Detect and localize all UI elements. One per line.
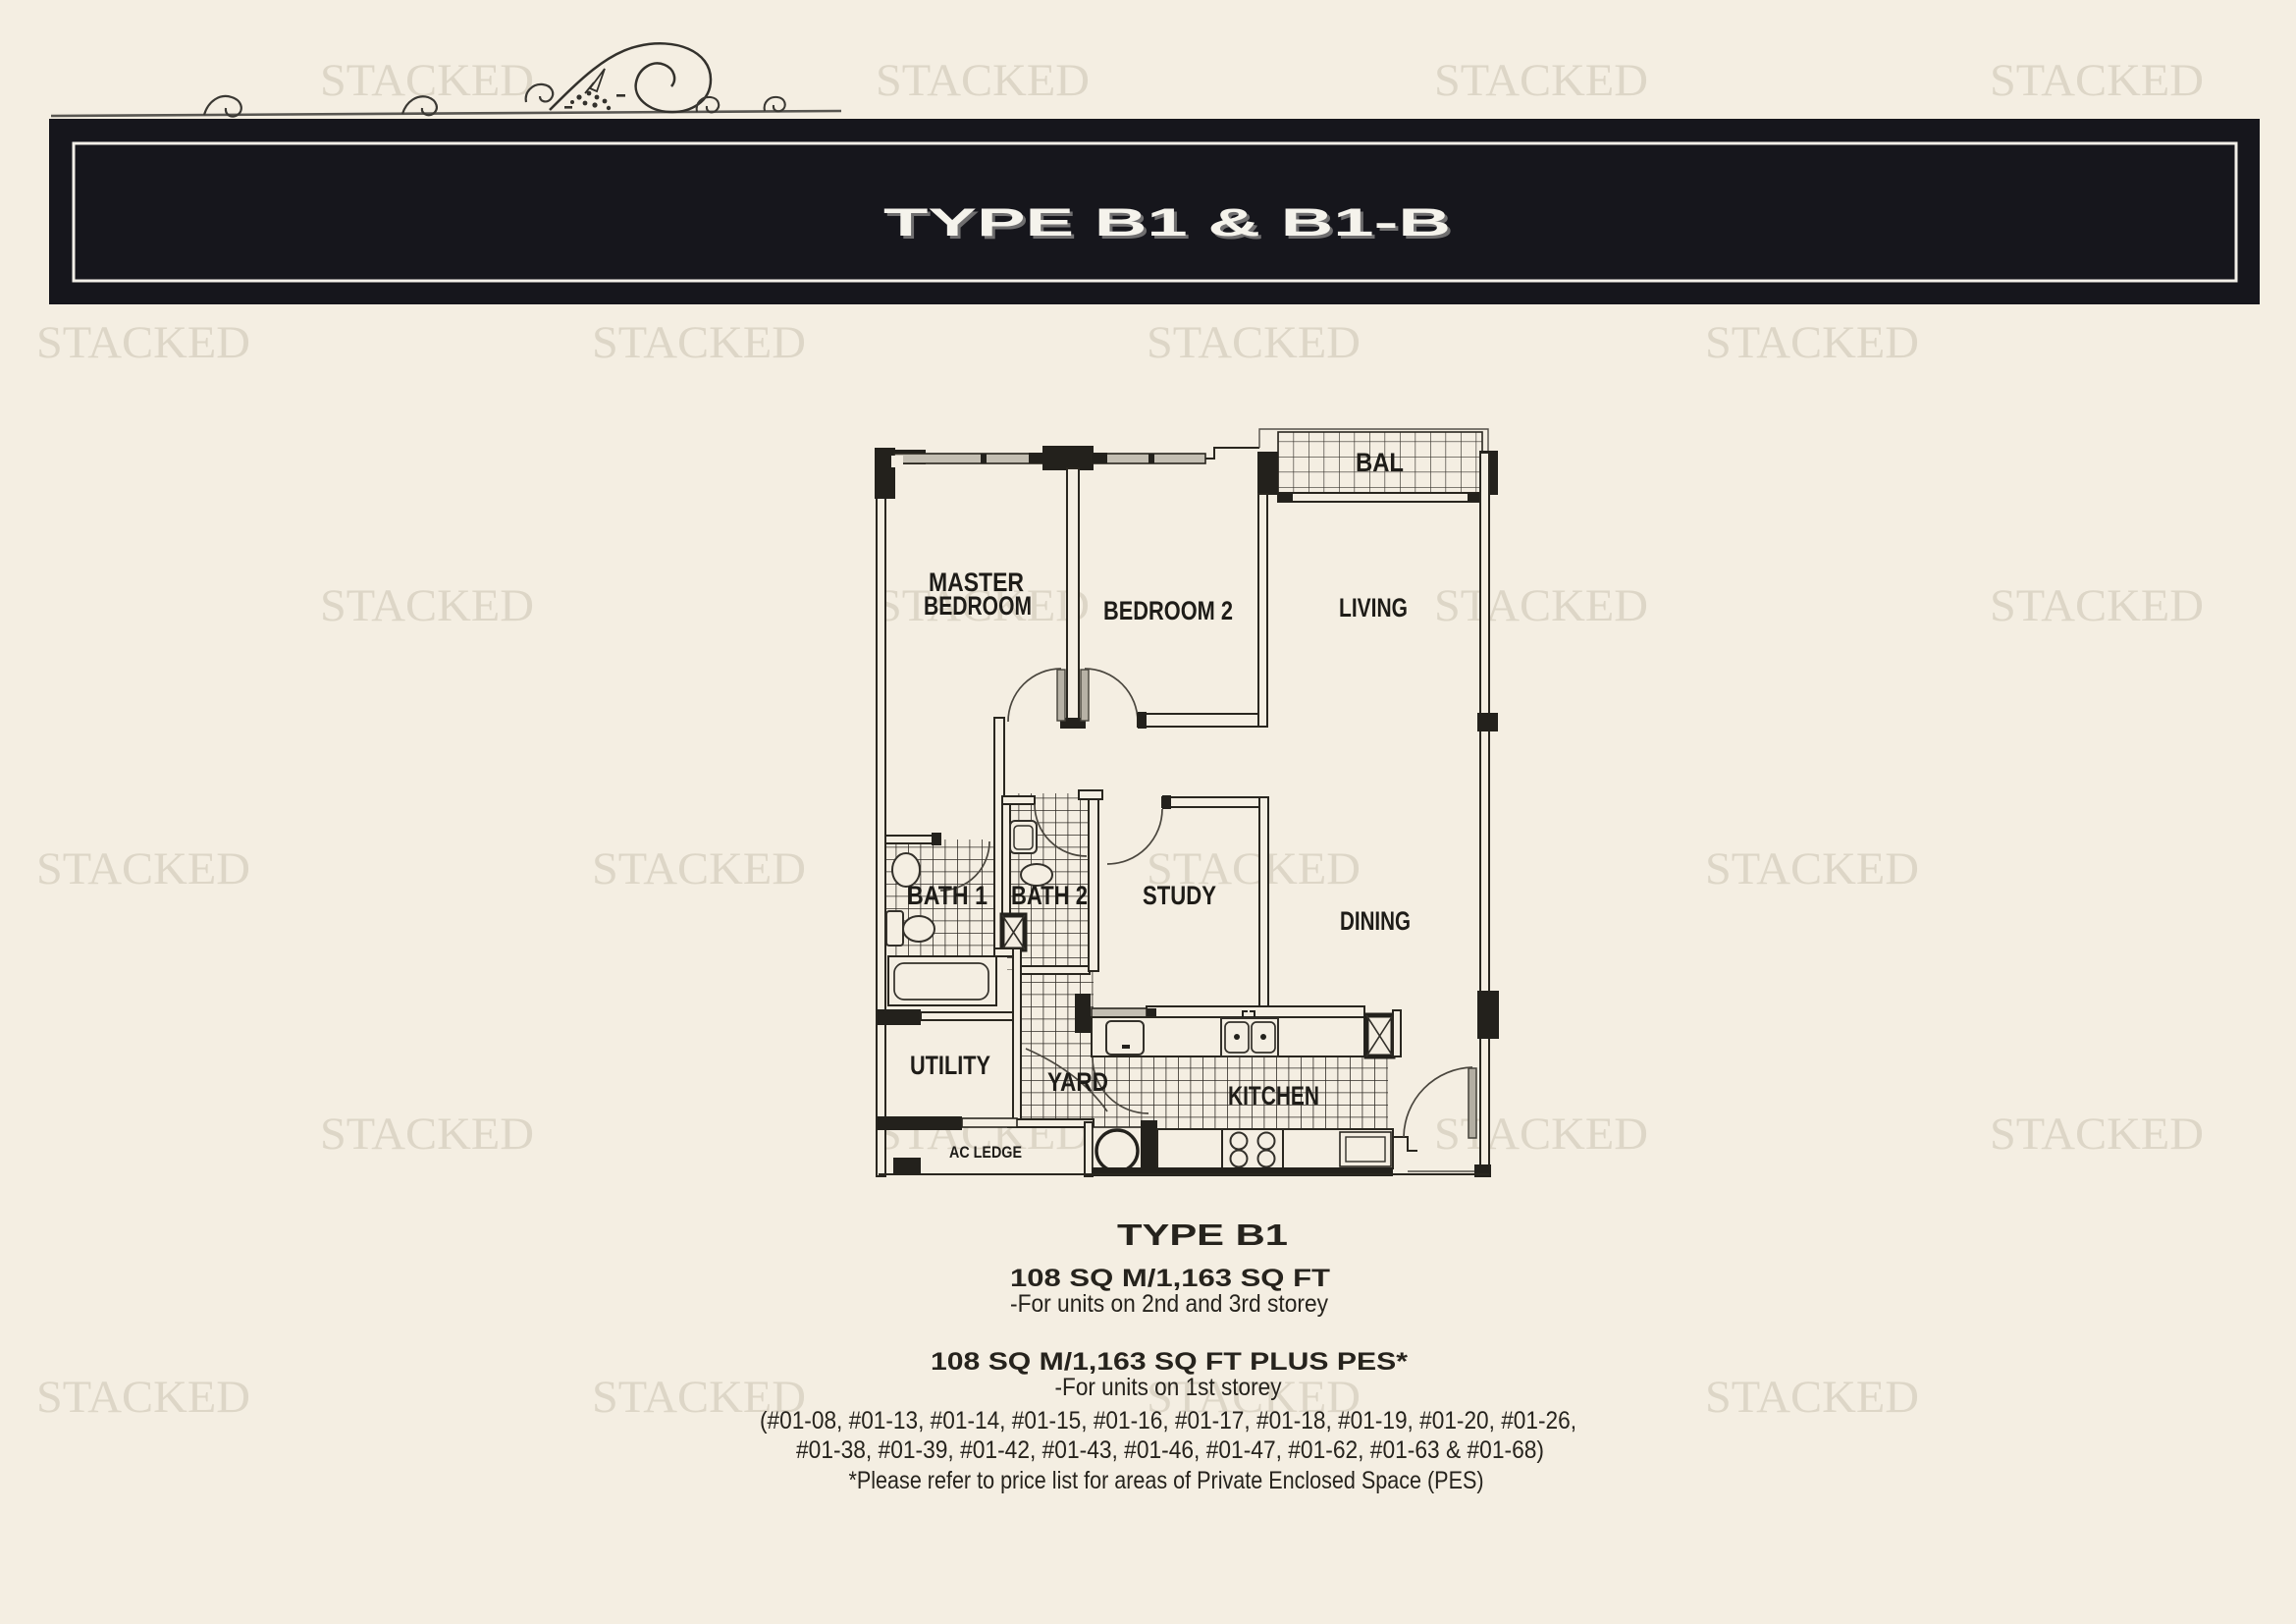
svg-text:STACKED: STACKED xyxy=(1705,843,1919,894)
svg-text:108 SQ M/1,163 SQ FT: 108 SQ M/1,163 SQ FT xyxy=(1010,1265,1330,1292)
svg-text:#01-38, #01-39, #01-42, #01-43: #01-38, #01-39, #01-42, #01-43, #01-46, … xyxy=(796,1436,1544,1464)
svg-text:STACKED: STACKED xyxy=(36,1372,250,1423)
svg-text:BATH 2: BATH 2 xyxy=(1011,881,1088,910)
svg-text:*Please refer to price list fo: *Please refer to price list for areas of… xyxy=(849,1467,1484,1494)
svg-text:STACKED: STACKED xyxy=(1990,55,2204,106)
svg-text:STACKED: STACKED xyxy=(320,55,534,106)
svg-text:STACKED: STACKED xyxy=(320,580,534,631)
svg-text:108 SQ M/1,163 SQ FT PLUS PES*: 108 SQ M/1,163 SQ FT PLUS PES* xyxy=(931,1348,1408,1376)
svg-text:STACKED: STACKED xyxy=(592,843,806,894)
svg-text:BAL: BAL xyxy=(1356,448,1404,477)
svg-text:STACKED: STACKED xyxy=(1705,1372,1919,1423)
svg-text:BEDROOM 2: BEDROOM 2 xyxy=(1103,596,1233,625)
svg-text:TYPE B1: TYPE B1 xyxy=(1117,1218,1288,1252)
svg-text:STACKED: STACKED xyxy=(36,317,250,368)
svg-text:STACKED: STACKED xyxy=(1705,317,1919,368)
svg-text:BATH 1: BATH 1 xyxy=(907,881,988,910)
svg-text:(#01-08, #01-13, #01-14, #01-1: (#01-08, #01-13, #01-14, #01-15, #01-16,… xyxy=(760,1407,1576,1435)
svg-text:STACKED: STACKED xyxy=(320,1109,534,1160)
svg-text:STACKED: STACKED xyxy=(36,843,250,894)
svg-text:STACKED: STACKED xyxy=(1434,1109,1648,1160)
svg-text:KITCHEN: KITCHEN xyxy=(1228,1081,1319,1110)
svg-text:AC LEDGE: AC LEDGE xyxy=(949,1143,1022,1162)
svg-text:-For units on 1st storey: -For units on 1st storey xyxy=(1055,1374,1282,1401)
svg-text:STACKED: STACKED xyxy=(592,317,806,368)
svg-text:STACKED: STACKED xyxy=(1434,55,1648,106)
svg-text:STACKED: STACKED xyxy=(1147,317,1361,368)
svg-text:STACKED: STACKED xyxy=(1990,1109,2204,1160)
svg-text:YARD: YARD xyxy=(1047,1067,1108,1097)
svg-text:STUDY: STUDY xyxy=(1143,881,1216,910)
svg-text:DINING: DINING xyxy=(1340,906,1411,936)
svg-text:LIVING: LIVING xyxy=(1339,593,1408,623)
svg-text:UTILITY: UTILITY xyxy=(910,1051,990,1080)
svg-text:BEDROOM: BEDROOM xyxy=(924,591,1032,621)
svg-text:-For units on 2nd and 3rd stor: -For units on 2nd and 3rd storey xyxy=(1010,1290,1328,1318)
svg-text:STACKED: STACKED xyxy=(1990,580,2204,631)
svg-text:STACKED: STACKED xyxy=(876,55,1090,106)
svg-text:TYPE B1 & B1-B: TYPE B1 & B1-B xyxy=(883,201,1451,244)
svg-text:STACKED: STACKED xyxy=(1434,580,1648,631)
